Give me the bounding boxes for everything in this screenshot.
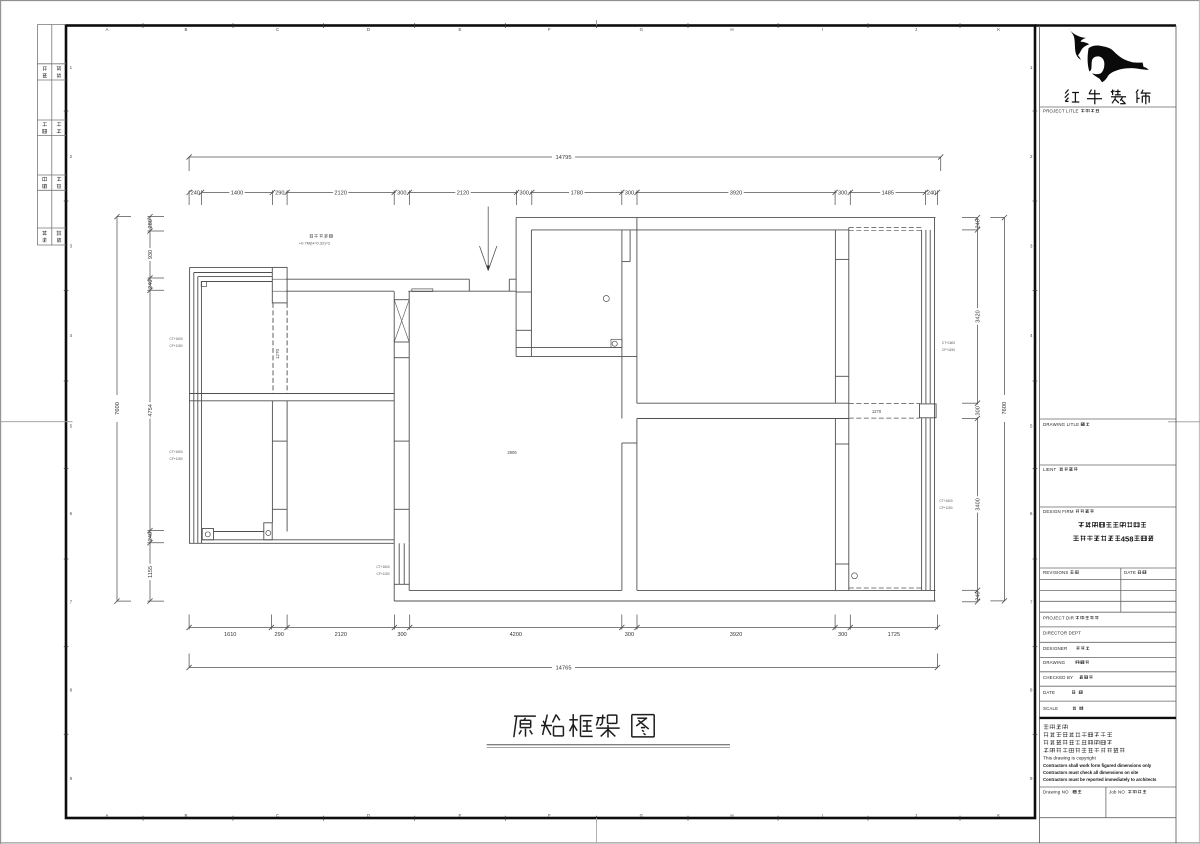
svg-text:300: 300 xyxy=(975,406,981,415)
svg-text:CT+1600: CT+1600 xyxy=(169,337,182,341)
svg-text:LIENT: LIENT xyxy=(1043,467,1056,472)
svg-text:290: 290 xyxy=(275,191,284,197)
svg-text:930: 930 xyxy=(148,250,154,259)
svg-text:3420: 3420 xyxy=(975,310,981,322)
svg-text:K: K xyxy=(997,27,1000,32)
svg-text:H: H xyxy=(730,813,733,818)
svg-text:Drawing NO: Drawing NO xyxy=(1043,790,1069,795)
svg-text:14765: 14765 xyxy=(555,666,571,672)
svg-text:300: 300 xyxy=(625,191,634,197)
svg-text:4200: 4200 xyxy=(510,632,522,638)
svg-text:3400: 3400 xyxy=(975,498,981,510)
svg-text:2120: 2120 xyxy=(335,632,347,638)
svg-text:CT+1600: CT+1600 xyxy=(942,341,955,345)
svg-text:J: J xyxy=(915,27,917,32)
svg-text:Contractors must check all dim: Contractors must check all dimensions on… xyxy=(1043,770,1139,775)
svg-text:E: E xyxy=(459,813,462,818)
svg-text:CF+1150: CF+1150 xyxy=(170,457,183,461)
svg-text:I: I xyxy=(822,813,823,818)
svg-text:300: 300 xyxy=(520,191,529,197)
svg-text:G: G xyxy=(640,813,644,818)
svg-text:300: 300 xyxy=(625,632,634,638)
svg-text:PROJECT LITLE: PROJECT LITLE xyxy=(1043,109,1079,114)
svg-text:C: C xyxy=(276,27,279,32)
svg-text:H: H xyxy=(730,27,733,32)
svg-text:+0.7M(H=0.32)=2: +0.7M(H=0.32)=2 xyxy=(299,241,331,246)
svg-text:1485: 1485 xyxy=(882,191,894,197)
svg-text:F: F xyxy=(548,27,551,32)
svg-text:1400: 1400 xyxy=(231,191,243,197)
svg-text:290: 290 xyxy=(275,632,284,638)
svg-text:K: K xyxy=(997,813,1000,818)
svg-text:REVISIONS: REVISIONS xyxy=(1043,570,1068,575)
svg-text:280: 280 xyxy=(148,219,154,228)
svg-text:300: 300 xyxy=(838,191,847,197)
svg-text:CHECKED BY: CHECKED BY xyxy=(1043,675,1073,680)
svg-text:300: 300 xyxy=(838,632,847,638)
svg-text:1725: 1725 xyxy=(888,632,900,638)
svg-text:Job NO: Job NO xyxy=(1109,790,1125,795)
svg-text:D: D xyxy=(367,27,370,32)
svg-text:C: C xyxy=(276,813,279,818)
svg-text:240: 240 xyxy=(148,532,154,541)
svg-text:2120: 2120 xyxy=(334,191,346,197)
svg-text:1270: 1270 xyxy=(275,348,280,359)
svg-text:CT+1600: CT+1600 xyxy=(939,499,952,503)
svg-text:1270: 1270 xyxy=(872,409,882,414)
svg-text:G: G xyxy=(640,27,644,32)
svg-text:14795: 14795 xyxy=(555,155,571,161)
svg-text:SCALE: SCALE xyxy=(1043,706,1058,711)
svg-text:2120: 2120 xyxy=(457,191,469,197)
svg-text:D: D xyxy=(367,813,370,818)
svg-text:CF+1150: CF+1150 xyxy=(170,344,183,348)
svg-text:2906: 2906 xyxy=(507,450,517,455)
svg-text:CT+1600: CT+1600 xyxy=(169,450,182,454)
svg-text:300: 300 xyxy=(397,632,406,638)
svg-text:A: A xyxy=(106,27,109,32)
svg-text:CF+1150: CF+1150 xyxy=(377,572,390,576)
svg-text:3920: 3920 xyxy=(730,632,742,638)
svg-text:F: F xyxy=(548,813,551,818)
svg-text:Contractors must be reported i: Contractors must be reported immediately… xyxy=(1043,777,1157,782)
svg-text:240: 240 xyxy=(975,591,981,600)
svg-text:240: 240 xyxy=(927,191,936,197)
svg-text:B: B xyxy=(185,813,188,818)
svg-text:DATE: DATE xyxy=(1124,570,1136,575)
svg-text:1780: 1780 xyxy=(571,191,583,197)
svg-text:A: A xyxy=(106,813,109,818)
svg-text:DESIGNER: DESIGNER xyxy=(1043,646,1067,651)
svg-text:240: 240 xyxy=(191,191,200,197)
svg-text:This drawing is copyright: This drawing is copyright xyxy=(1043,756,1096,762)
svg-text:B: B xyxy=(185,27,188,32)
svg-text:DESIGN FIRM: DESIGN FIRM xyxy=(1043,509,1074,514)
svg-text:300: 300 xyxy=(397,191,406,197)
svg-text:1155: 1155 xyxy=(148,566,154,578)
svg-text:CF+1150: CF+1150 xyxy=(940,506,953,510)
svg-text:CF+1150: CF+1150 xyxy=(942,348,955,352)
svg-text:DRAWING: DRAWING xyxy=(1043,660,1066,665)
svg-text:PROJECT DIR: PROJECT DIR xyxy=(1043,616,1074,621)
svg-text:458: 458 xyxy=(1121,534,1134,543)
svg-text:3920: 3920 xyxy=(730,191,742,197)
svg-text:7600: 7600 xyxy=(1002,402,1008,415)
svg-text:1610: 1610 xyxy=(224,632,236,638)
svg-text:240: 240 xyxy=(975,219,981,228)
svg-text:E: E xyxy=(459,27,462,32)
svg-text:DIRECTOR DEPT: DIRECTOR DEPT xyxy=(1043,631,1081,636)
svg-text:I: I xyxy=(822,27,823,32)
svg-text:DATE: DATE xyxy=(1043,690,1055,695)
svg-text:7600: 7600 xyxy=(115,402,121,415)
svg-text:CT+1600: CT+1600 xyxy=(376,565,389,569)
svg-text:Contractors shall work form fi: Contractors shall work form figured dime… xyxy=(1043,763,1152,768)
svg-text:DRAWING LITLE: DRAWING LITLE xyxy=(1043,422,1079,427)
svg-text:J: J xyxy=(915,813,917,818)
svg-text:240: 240 xyxy=(148,280,154,289)
svg-text:4754: 4754 xyxy=(148,404,154,416)
